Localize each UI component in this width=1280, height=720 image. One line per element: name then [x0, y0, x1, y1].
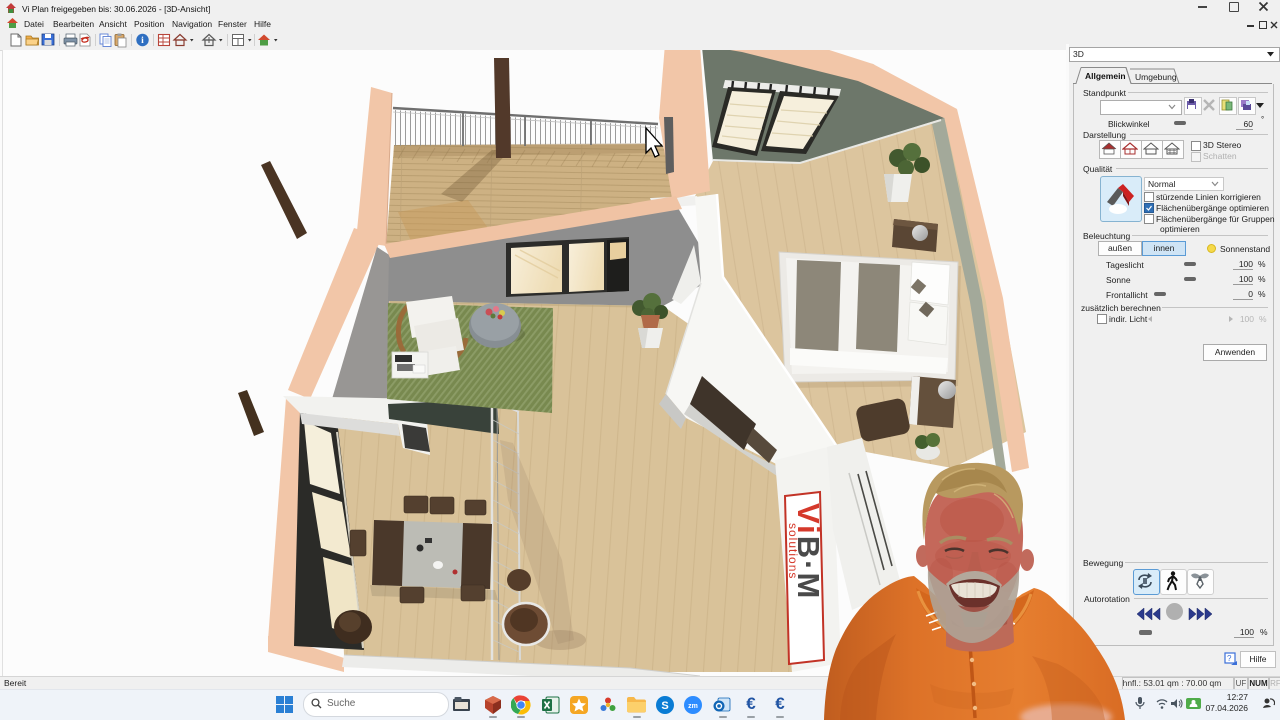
svg-text:?: ?	[1227, 654, 1232, 663]
svg-text:zm: zm	[688, 703, 698, 710]
svg-text:S: S	[661, 700, 668, 712]
svg-text:i: i	[141, 36, 144, 46]
svg-text:solutions: solutions	[786, 523, 800, 579]
